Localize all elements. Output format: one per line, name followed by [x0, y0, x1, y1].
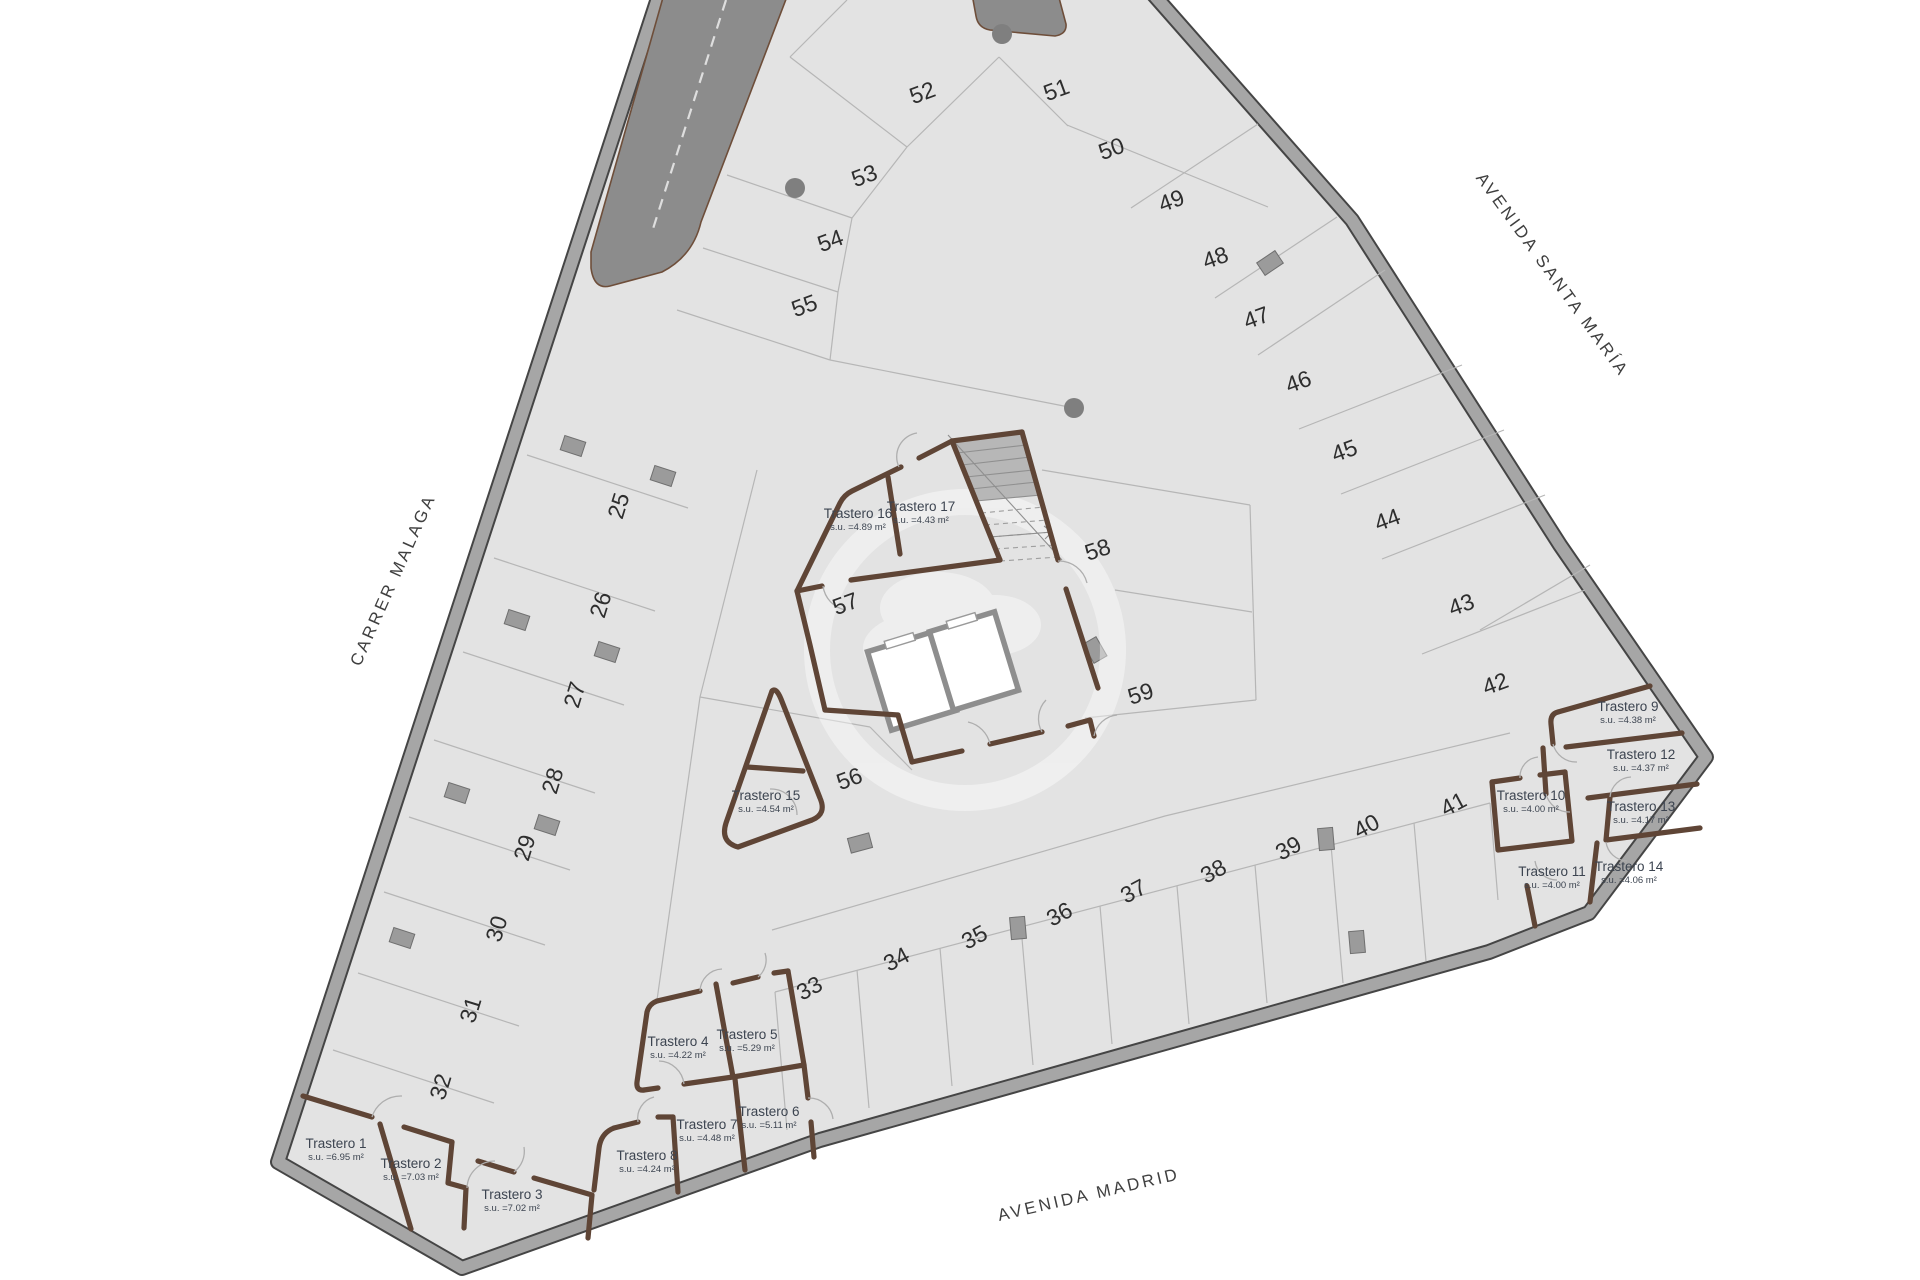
storage-room-area: s.u. =4.17 m² [1613, 815, 1669, 826]
storage-room-area: s.u. =6.95 m² [308, 1152, 364, 1163]
storage-room-name: Trastero 16 [824, 506, 893, 521]
storage-room-area: s.u. =4.54 m² [738, 804, 794, 815]
storage-room-name: Trastero 7 [676, 1117, 737, 1132]
storage-room-name: Trastero 1 [305, 1136, 366, 1151]
storage-room-name: Trastero 5 [716, 1027, 777, 1042]
storage-room-name: Trastero 13 [1607, 799, 1676, 814]
g [1349, 930, 1366, 953]
storage-room-area: s.u. =4.43 m² [893, 515, 949, 526]
storage-room-area: s.u. =7.02 m² [484, 1203, 540, 1214]
g [1318, 827, 1335, 850]
round-column [992, 24, 1012, 44]
column [1010, 916, 1027, 939]
g [1010, 916, 1027, 939]
storage-room-area: s.u. =4.24 m² [619, 1164, 675, 1175]
storage-room-name: Trastero 9 [1597, 699, 1658, 714]
storage-room-area: s.u. =4.00 m² [1524, 880, 1580, 891]
storage-room-area: s.u. =4.22 m² [650, 1050, 706, 1061]
round-column [1064, 398, 1084, 418]
street-label-avenida-madrid: AVENIDA MADRID [996, 1164, 1182, 1224]
storage-room-area: s.u. =7.03 m² [383, 1172, 439, 1183]
floor-plan-svg: 2526272829303132333435363738394041424344… [0, 0, 1920, 1280]
storage-room-name: Trastero 2 [380, 1156, 441, 1171]
storage-room-area: s.u. =4.00 m² [1503, 804, 1559, 815]
column [1349, 930, 1366, 953]
storage-room-name: Trastero 6 [738, 1104, 799, 1119]
storage-room-name: Trastero 14 [1595, 859, 1664, 874]
storage-room-area: s.u. =4.89 m² [830, 522, 886, 533]
street-label-carrer-malaga: CARRER MALAGA [346, 491, 439, 669]
round-column [785, 178, 805, 198]
storage-room-area: s.u. =5.11 m² [741, 1120, 796, 1131]
column [1318, 827, 1335, 850]
floor-plan-canvas: 2526272829303132333435363738394041424344… [0, 0, 1920, 1280]
storage-room-name: Trastero 8 [616, 1148, 677, 1163]
storage-room-name: Trastero 10 [1497, 788, 1566, 803]
storage-room-name: Trastero 15 [732, 788, 801, 803]
storage-room-area: s.u. =4.37 m² [1613, 763, 1669, 774]
storage-room-name: Trastero 12 [1607, 747, 1676, 762]
street-label-avenida-santa-maria: AVENIDA SANTA MARÍA [1472, 169, 1633, 380]
storage-room-area: s.u. =4.38 m² [1600, 715, 1656, 726]
storage-room-area: s.u. =5.29 m² [719, 1043, 775, 1054]
storage-room-name: Trastero 11 [1518, 864, 1586, 879]
storage-room-name: Trastero 17 [887, 499, 956, 514]
storage-room-area: s.u. =4.06 m² [1601, 875, 1657, 886]
storage-room-name: Trastero 3 [481, 1187, 542, 1202]
storage-room-area: s.u. =4.48 m² [679, 1133, 735, 1144]
storage-room-name: Trastero 4 [647, 1034, 709, 1049]
